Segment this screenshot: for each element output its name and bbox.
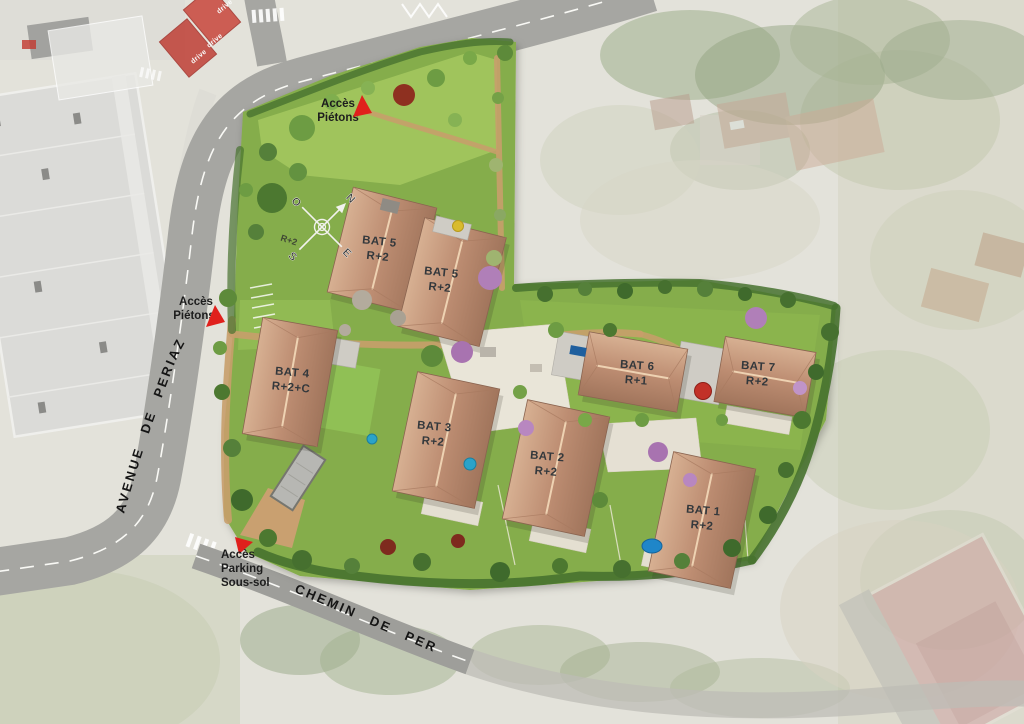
building-name: BAT 7: [741, 360, 776, 374]
building-floors: R+2: [534, 465, 558, 479]
pool: [642, 539, 662, 553]
access-label: Accès: [221, 549, 255, 561]
masterplan-svg: drive drive drive: [0, 0, 1024, 724]
access-label: Piétons: [317, 112, 359, 124]
building-floors: R+1: [624, 374, 648, 388]
building-floors: R+2: [690, 519, 714, 533]
pool: [367, 434, 377, 444]
access-label: Parking: [221, 563, 263, 575]
building-floors: R+2: [428, 281, 452, 295]
pool: [464, 458, 476, 470]
access-label: Accès: [179, 296, 213, 308]
red-parasol: [695, 383, 712, 400]
building-name: BAT 6: [620, 359, 655, 373]
building-floors: R+2: [745, 375, 768, 389]
yellow-umbrella: [453, 221, 464, 232]
access-label: Accès: [321, 98, 355, 110]
access-label: Piétons: [173, 310, 215, 322]
building-floors: R+2: [366, 250, 390, 264]
masterplan-image: drive drive drive: [0, 0, 1024, 724]
building-floors: R+2: [421, 435, 445, 449]
access-label: Sous-sol: [221, 577, 270, 589]
